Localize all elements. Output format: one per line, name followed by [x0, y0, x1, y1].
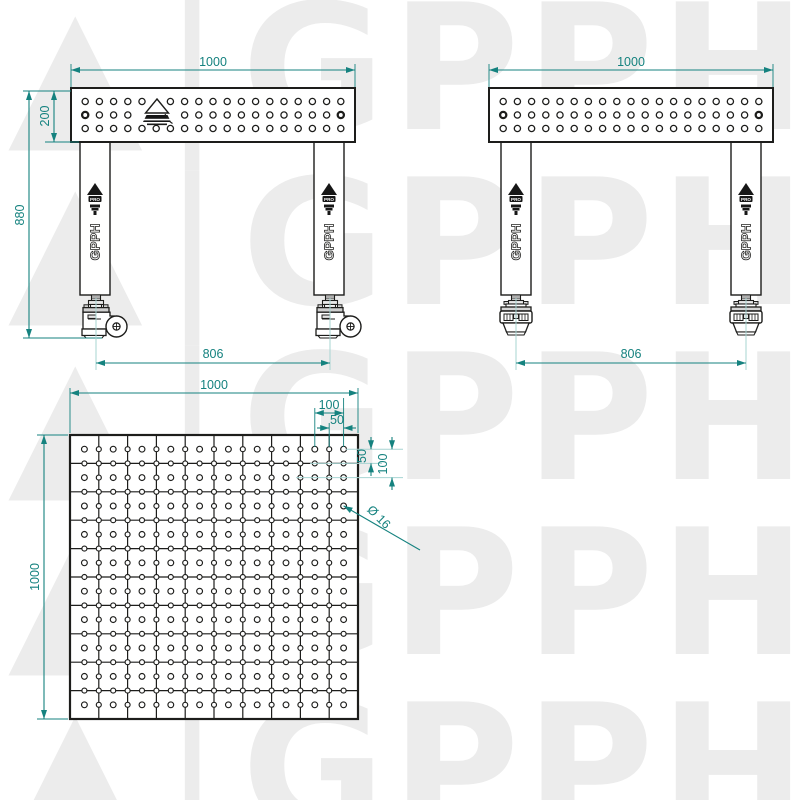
face-hole	[742, 125, 748, 131]
system-hole	[240, 589, 245, 594]
face-hole	[309, 125, 315, 131]
system-hole	[255, 489, 260, 494]
system-hole	[183, 688, 188, 693]
face-hole	[238, 125, 244, 131]
system-hole	[284, 489, 289, 494]
face-hole	[585, 112, 591, 118]
dim-total-height: 880	[13, 205, 27, 226]
system-hole	[110, 617, 116, 623]
face-hole	[224, 98, 230, 104]
face-hole	[614, 125, 620, 131]
face-hole	[514, 125, 520, 131]
system-hole	[240, 702, 245, 707]
system-hole	[140, 575, 145, 580]
system-hole	[255, 461, 260, 466]
system-hole	[183, 532, 188, 537]
face-hole	[267, 98, 273, 104]
system-hole	[168, 518, 173, 523]
top-view: 1000 1000 100 50 50 100 Ø 16	[28, 378, 420, 719]
system-hole	[197, 475, 203, 481]
system-hole	[139, 532, 145, 538]
system-hole	[197, 631, 202, 636]
system-hole	[183, 660, 188, 665]
system-hole	[82, 631, 87, 636]
system-hole	[226, 645, 232, 651]
system-hole	[327, 660, 332, 665]
system-hole	[96, 560, 101, 565]
system-hole	[82, 489, 87, 494]
system-hole	[154, 475, 159, 480]
system-hole	[255, 688, 260, 693]
system-hole	[226, 631, 231, 636]
system-hole	[183, 617, 188, 622]
system-hole	[82, 461, 87, 466]
system-hole	[283, 674, 289, 680]
system-hole	[96, 617, 101, 622]
system-hole	[226, 532, 232, 538]
system-hole	[96, 631, 101, 636]
system-hole	[183, 674, 188, 679]
system-hole	[139, 475, 145, 481]
system-hole	[168, 617, 174, 623]
system-hole	[312, 489, 317, 494]
system-hole	[269, 646, 274, 651]
system-hole	[82, 560, 88, 566]
face-hole	[324, 125, 330, 131]
system-hole	[168, 532, 174, 538]
system-hole	[254, 532, 260, 538]
system-hole	[212, 447, 217, 452]
system-hole	[312, 603, 317, 608]
system-hole	[327, 646, 332, 651]
dim-edge-offset: 50	[330, 413, 344, 427]
system-hole	[154, 575, 159, 580]
system-hole	[82, 660, 87, 665]
face-hole	[614, 112, 620, 118]
system-hole	[212, 660, 217, 665]
system-hole	[168, 446, 174, 452]
system-hole	[111, 631, 116, 636]
system-hole	[312, 560, 318, 566]
system-hole	[125, 489, 130, 494]
system-hole	[212, 674, 217, 679]
front-view-casters: 1000 200 880 806	[13, 55, 361, 370]
system-hole	[283, 702, 289, 708]
system-hole	[269, 532, 274, 537]
system-hole	[140, 489, 145, 494]
face-hole	[182, 112, 188, 118]
system-hole	[327, 504, 332, 509]
system-hole	[183, 631, 188, 636]
face-hole	[699, 125, 705, 131]
system-hole	[298, 532, 303, 537]
face-hole	[96, 125, 102, 131]
system-hole	[139, 588, 145, 594]
system-hole	[197, 446, 203, 452]
system-hole	[212, 617, 217, 622]
system-hole	[283, 446, 289, 452]
system-hole	[226, 489, 231, 494]
system-hole	[168, 575, 173, 580]
system-hole	[154, 631, 159, 636]
system-hole	[96, 489, 101, 494]
system-hole	[312, 645, 318, 651]
face-hole	[338, 98, 344, 104]
system-hole	[183, 603, 188, 608]
system-hole	[226, 674, 232, 680]
system-hole	[82, 546, 87, 551]
system-hole	[327, 617, 332, 622]
dim-depth: 1000	[28, 563, 42, 591]
system-hole	[110, 645, 116, 651]
system-hole	[110, 503, 116, 509]
system-hole	[140, 688, 145, 693]
system-hole	[110, 446, 116, 452]
face-hole	[281, 112, 287, 118]
system-hole	[298, 589, 303, 594]
face-hole	[571, 125, 577, 131]
system-hole	[240, 475, 245, 480]
face-hole	[196, 98, 202, 104]
face-hole	[529, 112, 535, 118]
caster-foot	[82, 295, 127, 338]
system-hole	[125, 518, 130, 523]
face-hole	[585, 98, 591, 104]
system-hole	[125, 674, 130, 679]
system-hole	[212, 489, 217, 494]
system-hole	[284, 575, 289, 580]
system-hole	[212, 631, 217, 636]
face-hole	[338, 125, 344, 131]
face-hole	[685, 98, 691, 104]
system-hole	[139, 617, 145, 623]
dim-plate-height: 200	[38, 106, 52, 127]
system-hole	[110, 475, 116, 481]
system-hole	[327, 560, 332, 565]
face-hole	[585, 125, 591, 131]
system-hole	[283, 645, 289, 651]
system-hole	[168, 560, 174, 566]
system-hole	[254, 674, 260, 680]
system-hole	[226, 518, 231, 523]
face-hole	[182, 125, 188, 131]
system-hole	[298, 646, 303, 651]
face-hole	[628, 125, 634, 131]
system-hole	[298, 546, 303, 551]
system-hole	[240, 646, 245, 651]
face-hole	[727, 112, 733, 118]
face-hole	[338, 112, 344, 118]
system-hole	[226, 546, 231, 551]
system-hole	[183, 560, 188, 565]
system-hole	[240, 461, 245, 466]
face-hole	[642, 125, 648, 131]
system-hole	[312, 575, 317, 580]
system-hole	[327, 489, 332, 494]
system-hole	[341, 645, 347, 651]
system-hole	[212, 546, 217, 551]
system-hole	[197, 660, 202, 665]
system-hole	[298, 504, 303, 509]
system-hole	[96, 461, 101, 466]
face-hole	[756, 98, 762, 104]
face-hole	[111, 98, 117, 104]
system-hole	[269, 518, 274, 523]
system-hole	[298, 688, 303, 693]
system-hole	[212, 504, 217, 509]
system-hole	[140, 660, 145, 665]
system-hole	[96, 475, 101, 480]
system-hole	[341, 446, 347, 452]
system-hole	[125, 646, 130, 651]
face-hole	[628, 98, 634, 104]
system-hole	[226, 446, 232, 452]
dim-row-grid: 100	[376, 454, 390, 475]
system-hole	[269, 702, 274, 707]
system-hole	[140, 603, 145, 608]
system-hole	[139, 645, 145, 651]
system-hole	[168, 461, 173, 466]
face-hole	[96, 98, 102, 104]
system-hole	[154, 518, 159, 523]
system-hole	[254, 446, 260, 452]
system-hole	[327, 518, 332, 523]
system-hole	[197, 588, 203, 594]
system-hole	[269, 575, 274, 580]
system-hole	[139, 560, 145, 566]
system-hole	[254, 645, 260, 651]
system-hole	[226, 503, 232, 509]
system-hole	[82, 503, 88, 509]
system-hole	[283, 503, 289, 509]
system-hole	[269, 504, 274, 509]
system-hole	[212, 646, 217, 651]
system-hole	[341, 603, 346, 608]
system-hole	[168, 546, 173, 551]
system-hole	[254, 702, 260, 708]
system-hole	[298, 575, 303, 580]
system-hole	[226, 660, 231, 665]
system-hole	[96, 546, 101, 551]
system-hole	[110, 560, 116, 566]
system-hole	[168, 660, 173, 665]
system-hole	[212, 518, 217, 523]
face-hole	[614, 98, 620, 104]
face-hole	[139, 98, 145, 104]
face-hole	[671, 98, 677, 104]
face-hole	[324, 112, 330, 118]
system-hole	[298, 674, 303, 679]
dim-row-spacing: 50	[355, 449, 369, 463]
system-hole	[197, 461, 202, 466]
technical-drawing-page: ▲|GPPH▲|GPPH▲|GPPH▲|GPPH▲|GPPH PRO GPPH	[0, 0, 800, 800]
system-hole	[283, 532, 289, 538]
system-hole	[284, 518, 289, 523]
system-hole	[125, 617, 130, 622]
face-hole	[727, 98, 733, 104]
face-hole	[96, 112, 102, 118]
system-hole	[110, 702, 116, 708]
system-hole	[298, 560, 303, 565]
system-hole	[139, 446, 145, 452]
system-hole	[226, 588, 232, 594]
system-hole	[284, 546, 289, 551]
system-hole	[254, 503, 260, 509]
face-hole	[756, 112, 762, 118]
system-hole	[111, 489, 116, 494]
face-hole	[111, 125, 117, 131]
system-hole	[154, 461, 159, 466]
system-hole	[125, 560, 130, 565]
face-hole	[600, 125, 606, 131]
system-hole	[212, 688, 217, 693]
system-hole	[269, 447, 274, 452]
face-hole	[281, 125, 287, 131]
face-hole	[224, 112, 230, 118]
face-hole	[309, 112, 315, 118]
system-hole	[212, 532, 217, 537]
system-hole	[168, 588, 174, 594]
system-hole	[154, 702, 159, 707]
table-leg	[501, 142, 531, 295]
face-hole	[82, 98, 88, 104]
system-hole	[139, 702, 145, 708]
face-hole	[82, 125, 88, 131]
dim-width: 1000	[200, 378, 228, 392]
system-hole	[298, 702, 303, 707]
system-hole	[226, 560, 232, 566]
system-hole	[82, 588, 88, 594]
system-hole	[269, 461, 274, 466]
system-hole	[197, 674, 203, 680]
face-hole	[253, 125, 259, 131]
system-hole	[154, 688, 159, 693]
face-hole	[514, 98, 520, 104]
system-hole	[269, 560, 274, 565]
system-hole	[96, 660, 101, 665]
system-hole	[284, 461, 289, 466]
system-hole	[240, 688, 245, 693]
face-hole	[267, 125, 273, 131]
system-hole	[212, 461, 217, 466]
face-hole	[557, 98, 563, 104]
caster-foot	[316, 295, 361, 338]
face-hole	[295, 125, 301, 131]
system-hole	[111, 660, 116, 665]
system-hole	[327, 603, 332, 608]
face-hole	[125, 98, 131, 104]
system-hole	[269, 674, 274, 679]
system-hole	[154, 589, 159, 594]
system-hole	[283, 475, 289, 481]
face-hole	[210, 112, 216, 118]
system-hole	[111, 688, 116, 693]
system-hole	[183, 575, 188, 580]
face-hole	[628, 112, 634, 118]
system-hole	[269, 489, 274, 494]
system-hole	[312, 546, 317, 551]
system-hole	[255, 518, 260, 523]
face-hole	[500, 98, 506, 104]
system-hole	[269, 546, 274, 551]
system-hole	[312, 532, 318, 538]
system-hole	[168, 688, 173, 693]
face-hole	[281, 98, 287, 104]
system-hole	[197, 546, 202, 551]
face-hole	[699, 98, 705, 104]
system-hole	[298, 461, 303, 466]
system-hole	[341, 674, 347, 680]
system-hole	[111, 461, 116, 466]
system-hole	[96, 518, 101, 523]
face-hole	[529, 125, 535, 131]
system-hole	[197, 688, 202, 693]
system-hole	[226, 461, 231, 466]
face-hole	[167, 98, 173, 104]
face-hole	[238, 98, 244, 104]
system-hole	[240, 603, 245, 608]
system-hole	[312, 503, 318, 509]
system-hole	[168, 674, 174, 680]
system-hole	[312, 702, 318, 708]
face-hole	[713, 112, 719, 118]
system-hole	[341, 546, 346, 551]
system-hole	[154, 447, 159, 452]
face-hole	[742, 98, 748, 104]
system-hole	[82, 617, 88, 623]
face-hole	[557, 125, 563, 131]
system-hole	[96, 603, 101, 608]
system-hole	[96, 646, 101, 651]
face-hole	[671, 125, 677, 131]
system-hole	[96, 532, 101, 537]
system-hole	[82, 674, 88, 680]
face-hole	[514, 112, 520, 118]
system-hole	[125, 702, 130, 707]
face-hole	[253, 98, 259, 104]
system-hole	[168, 603, 173, 608]
system-hole	[125, 475, 130, 480]
system-hole	[140, 631, 145, 636]
face-hole	[500, 112, 506, 118]
system-hole	[254, 588, 260, 594]
system-hole	[82, 603, 87, 608]
system-hole	[125, 504, 130, 509]
system-hole	[197, 532, 203, 538]
system-hole	[212, 475, 217, 480]
system-hole	[283, 560, 289, 566]
system-hole	[240, 660, 245, 665]
system-hole	[96, 688, 101, 693]
system-hole	[212, 589, 217, 594]
system-hole	[269, 589, 274, 594]
face-hole	[210, 98, 216, 104]
face-hole	[671, 112, 677, 118]
face-hole	[125, 112, 131, 118]
system-hole	[327, 575, 332, 580]
system-hole	[269, 660, 274, 665]
system-hole	[226, 617, 232, 623]
system-hole	[341, 702, 347, 708]
system-hole	[125, 688, 130, 693]
system-hole	[312, 688, 317, 693]
dim-grid-spacing: 100	[319, 398, 340, 412]
face-hole	[182, 98, 188, 104]
system-hole	[341, 588, 347, 594]
system-hole	[197, 617, 203, 623]
system-hole	[183, 589, 188, 594]
dim-leg-spacing: 806	[203, 347, 224, 361]
